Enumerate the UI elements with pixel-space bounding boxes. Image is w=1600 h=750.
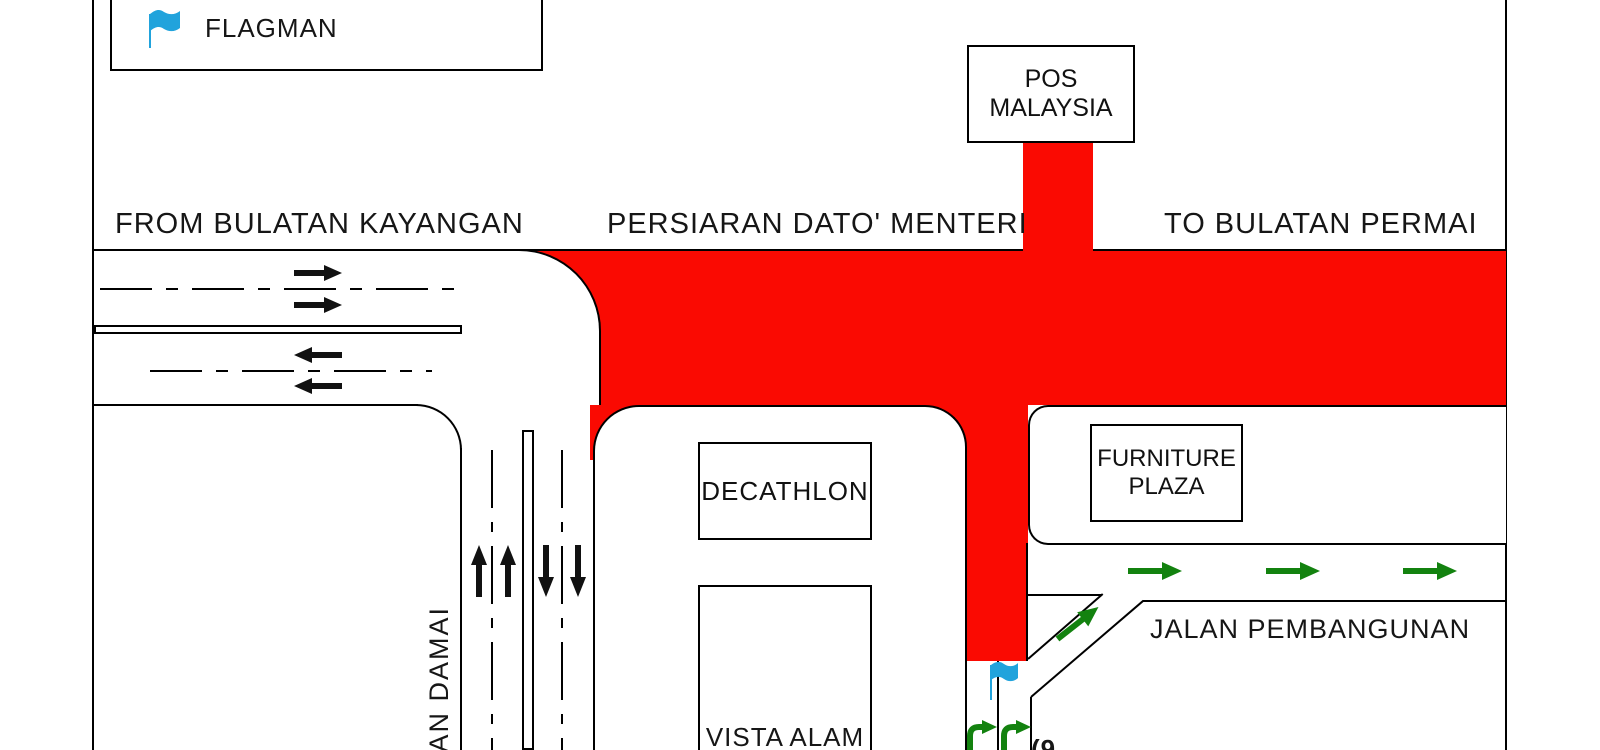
lane-divider-dashed-westbound xyxy=(150,370,432,372)
northbound-arrow-icon xyxy=(500,545,516,597)
westbound-arrow-icon xyxy=(294,378,342,394)
traffic-management-diagram: JALAN DAMAI DECATHLON VISTA ALAM FURNITU… xyxy=(0,0,1600,750)
closed-road-south-leg-right-edge xyxy=(1026,543,1028,661)
jalan-damai-median-island xyxy=(522,430,534,750)
eastbound-arrow-icon xyxy=(294,297,342,313)
southbound-arrow-icon xyxy=(538,545,554,597)
flagman-flag-icon xyxy=(988,659,1020,701)
jalan-pembangunan-label: JALAN PEMBANGUNAN xyxy=(1150,614,1470,645)
pos-malaysia-building: POSMALAYSIA xyxy=(967,45,1135,143)
green-turn-right-arrow-icon xyxy=(998,718,1032,750)
green-arrow-east-icon xyxy=(1128,562,1182,580)
green-arrow-east-icon xyxy=(1403,562,1457,580)
westbound-arrow-icon xyxy=(294,347,342,363)
closed-road-main xyxy=(515,251,1506,405)
closed-road-south-leg xyxy=(965,400,1028,661)
jalan-damai-lane-dash-left xyxy=(491,450,493,750)
furniture-plaza-building: FURNITUREPLAZA xyxy=(1090,424,1243,522)
vista-alam-label: VISTA ALAM xyxy=(698,722,872,750)
from-bulatan-kayangan-label: FROM BULATAN KAYANGAN xyxy=(115,208,524,241)
southbound-arrow-icon xyxy=(570,545,586,597)
decathlon-building: DECATHLON xyxy=(698,442,872,540)
main-road-top-edge-east xyxy=(1093,249,1506,251)
flagman-legend-label: FLAGMAN xyxy=(205,13,338,44)
jalan-damai-left-edge xyxy=(460,448,462,750)
west-road-corner-fillet xyxy=(416,404,462,450)
lane-divider-dashed-eastbound xyxy=(100,288,462,290)
green-arrow-east-icon xyxy=(1266,562,1320,580)
jalan-damai-lane-dash-right xyxy=(561,450,563,750)
persiaran-dato-menteri-label: PERSIARAN DATO' MENTERI xyxy=(607,208,1028,241)
west-road-bottom-edge xyxy=(92,404,418,406)
pos-malaysia-label: POSMALAYSIA xyxy=(989,65,1112,123)
closed-road-pos-approach xyxy=(1023,143,1093,255)
cut-off-text: (9 xyxy=(1031,734,1056,750)
decathlon-label: DECATHLON xyxy=(701,476,868,507)
flagman-legend-flag-icon xyxy=(146,6,182,50)
to-bulatan-permai-label: TO BULATAN PERMAI xyxy=(1164,208,1478,241)
median-island-west-road xyxy=(94,325,462,334)
slip-road-island-top-edge xyxy=(1028,594,1102,596)
furniture-plaza-label: FURNITUREPLAZA xyxy=(1097,445,1236,501)
northbound-arrow-icon xyxy=(471,545,487,597)
eastbound-arrow-icon xyxy=(294,265,342,281)
jalan-pembangunan-bottom-edge xyxy=(1143,600,1506,602)
jalan-damai-label: JALAN DAMAI xyxy=(424,605,455,750)
green-turn-right-arrow-icon xyxy=(964,718,998,750)
